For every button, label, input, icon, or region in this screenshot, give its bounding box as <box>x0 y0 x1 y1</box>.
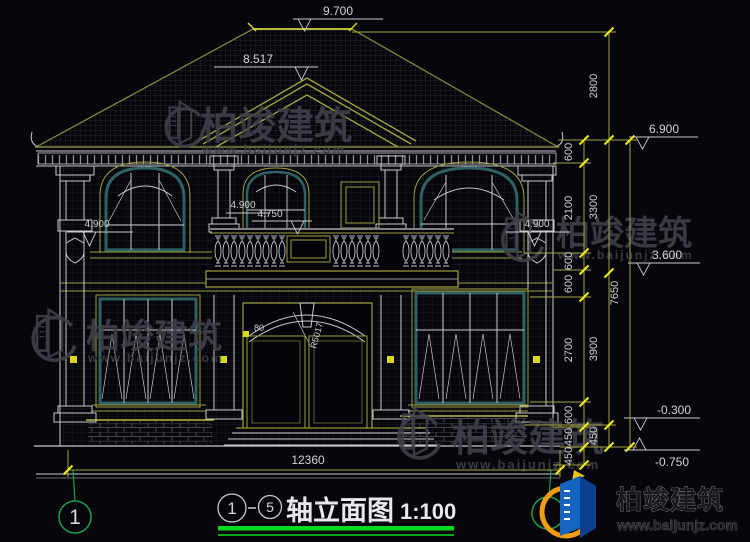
elevation-drawing: 柏竣建筑 www.baijunjz.com 柏竣建筑 www.baijunjz.… <box>0 0 750 542</box>
svg-text:600: 600 <box>563 252 575 270</box>
lamp-marker <box>533 356 540 363</box>
lamp-marker <box>387 356 394 363</box>
title-bar: 1 5 轴立面图 1:100 <box>218 494 456 535</box>
elevation-sill-right: 4.900 <box>524 219 549 230</box>
lamp-marker <box>70 356 77 363</box>
title-axis-from: 1 <box>227 499 236 518</box>
dim-label-total-width: 12360 <box>291 453 325 467</box>
cad-elevation-sheet: 柏竣建筑 www.baijunjz.com 柏竣建筑 www.baijunjz.… <box>0 0 750 542</box>
brand-logo: 柏竣建筑 www.baijunjz.com <box>532 470 738 542</box>
watermark-company: 柏竣建筑 <box>452 418 604 460</box>
elevation-gable: 8.517 <box>243 52 273 66</box>
door-width-label: 80 <box>254 323 264 333</box>
brand-building-side <box>580 476 596 538</box>
balcony <box>206 228 458 287</box>
plinth-left <box>88 421 212 444</box>
svg-text:2100: 2100 <box>563 196 575 220</box>
svg-text:3300: 3300 <box>588 195 600 219</box>
svg-text:2700: 2700 <box>563 338 575 362</box>
drawing-scale: 1:100 <box>400 499 456 524</box>
elevation-grade-a: -0.300 <box>657 403 691 417</box>
eave-curl-left <box>31 132 38 147</box>
svg-text:450: 450 <box>588 427 600 445</box>
elevation-eave: 6.900 <box>649 122 679 136</box>
brand-company: 柏竣建筑 <box>616 485 724 515</box>
elevation-sill-left: 4.900 <box>84 219 109 230</box>
watermark-website: www.baijunjz.com <box>201 142 346 157</box>
elevation-center-upper: 4.900 <box>230 200 255 211</box>
brand-website: www.baijunjz.com <box>616 517 738 533</box>
elevation-center-lower: 4.750 <box>257 209 282 220</box>
svg-text:2800: 2800 <box>588 74 600 98</box>
svg-text:3900: 3900 <box>588 337 600 361</box>
title-underline-thick <box>218 526 454 531</box>
dim-labels-inner: 600 2100 600 600 2700 600 450 450 <box>563 143 575 465</box>
svg-text:600: 600 <box>563 275 575 293</box>
elevation-grade-b: -0.750 <box>655 455 689 469</box>
elevation-second-floor: 3.600 <box>652 248 682 262</box>
watermark-website: www.baijunjz.com <box>87 351 224 365</box>
svg-text:600: 600 <box>563 143 575 161</box>
axis-number-left: 1 <box>69 506 81 529</box>
svg-text:450: 450 <box>563 447 575 465</box>
drawing-title: 轴立面图 <box>286 495 394 526</box>
svg-text:600: 600 <box>563 406 575 424</box>
door-marker <box>243 331 249 337</box>
elevation-ridge: 9.700 <box>323 4 353 18</box>
svg-text:450: 450 <box>563 428 575 446</box>
title-axis-to: 5 <box>266 499 274 515</box>
dim-label-total-height: 7650 <box>609 281 621 305</box>
